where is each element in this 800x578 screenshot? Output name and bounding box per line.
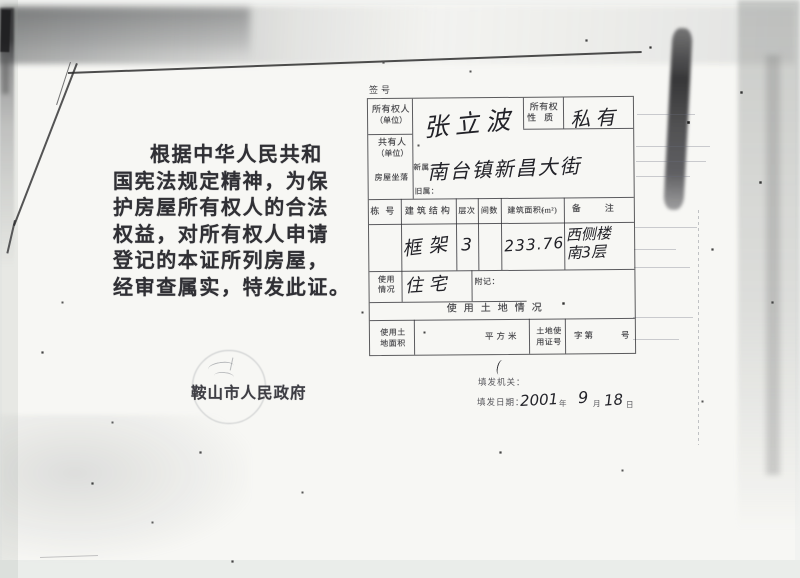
bleed-line [633,339,679,340]
speckle-field [0,0,1,1]
grid-line-h [370,318,635,321]
declaration-line: 登记的本证所列房屋， [113,248,358,275]
usage-value: 住宅 [404,269,453,298]
day-unit-label: 日 [626,399,635,410]
land-cert-label-line2: 用证号 [536,337,562,346]
location-new-value: 南台镇新昌大街 [427,150,582,186]
issue-month-value: 9 [578,388,589,407]
serial-number-label: 签号 [369,83,393,96]
remarks-line1: 西侧楼 [565,224,611,244]
scanned-certificate-page: 根据中华人民共和 国宪法规定精神，为保 护房屋所有权人的合法 权益，对所有权人申… [0,0,800,578]
top-left-noise-patch [0,8,250,58]
bleed-line [636,161,706,162]
declaration-line: 经审查属实，特发此证。 [113,275,358,302]
column-header-rooms: 间数 [479,205,500,216]
declaration-line: 根据中华人民共和 [113,142,358,169]
issuing-date-label: 填发日期： [477,396,525,408]
land-area-unit: 平方米 [485,331,520,342]
land-section-title: 使用土地情况 [447,303,549,315]
land-cert-label-line1: 土地使 [536,326,562,335]
bleed-line [637,114,695,115]
floors-value: 3 [461,235,472,255]
issue-day-value: 18 [603,390,623,409]
declaration-line: 护房屋所有权人的合法 [113,195,358,222]
location-old-label: 旧属： [415,186,439,197]
bleed-line [636,176,690,177]
column-header-dong: 栋号 [370,206,401,217]
land-area-label-line1: 使用土 [380,328,406,337]
column-header-structure: 建筑结构 [403,205,455,216]
bleed-line [635,227,697,228]
property-registration-form: 所有权人 （单位） 张立波 所有权 性质 私有 共有人 （单位） 房屋坐落 新属… [367,96,636,356]
column-header-remarks: 备注 [572,203,638,215]
nature-label-line2: 性质 [527,112,561,122]
ownership-nature-value: 私有 [569,101,621,133]
structure-value: 框架 [401,229,456,262]
land-area-label-line2: 地面积 [380,339,406,348]
bleed-line [634,249,676,250]
right-band-streak [766,55,780,475]
grid-line-v [529,319,530,354]
grid-line-v [471,270,472,301]
bleed-line [636,146,710,147]
scanner-bottom-margin [0,560,800,578]
co-owner-label: 共有人 （单位） [371,137,413,159]
land-area-label: 使用土 地面积 [373,327,413,349]
grid-line-v [563,97,564,128]
issue-year-value: 2001 [520,390,559,410]
declaration-line: 国宪法规定精神，为保 [113,169,358,196]
annex-label: 附记： [474,276,500,287]
corner-gray-mark [2,58,9,94]
usage-label-line1: 使用 [378,275,395,284]
grid-line-v [414,320,415,355]
land-cert-label: 土地使 用证号 [533,325,565,347]
co-owner-label-line1: 共有人 [378,137,407,147]
owner-label-line2: （单位） [375,116,407,125]
year-unit-label: 年 [559,398,568,409]
bleed-line [633,317,693,318]
declaration-line: 权益，对所有权人申请 [113,222,358,249]
land-cert-suffix: 号 [621,330,630,341]
remarks-line2: 南3层 [566,242,606,262]
month-unit-label: 月 [593,398,602,409]
column-header-area: 建筑面积(m²) [502,204,563,216]
owner-label-line1: 所有权人 [372,104,410,114]
grid-line-h [368,134,412,135]
nature-label-line1: 所有权 [530,102,559,112]
corner-black-mark [0,10,10,52]
ownership-nature-label: 所有权 性质 [525,101,563,123]
certificate-declaration: 根据中华人民共和 国宪法规定精神，为保 护房屋所有权人的合法 权益，对所有权人申… [113,142,358,302]
location-label: 房屋坐落 [371,172,413,183]
land-cert-prefix: 字第 [574,330,595,341]
bottom-left-noise [0,415,250,560]
owner-label: 所有权人 （单位） [370,104,412,126]
grid-line-v [565,318,566,353]
co-owner-label-line2: （单位） [376,149,408,158]
issuing-authority-name: 鞍山市人民政府 [191,381,321,403]
usage-label: 使用 情况 [371,275,401,295]
column-header-floors: 层次 [457,205,477,216]
bleed-line [634,267,690,268]
usage-label-line2: 情况 [378,285,395,294]
issuing-org-label: 填发机关： [478,376,526,388]
page-edge-dotted-line [698,210,699,445]
remarks-value: 西侧楼 南3层 [565,224,612,262]
owner-name-value: 张立波 [422,100,518,145]
area-value: 233.76 [504,234,565,256]
